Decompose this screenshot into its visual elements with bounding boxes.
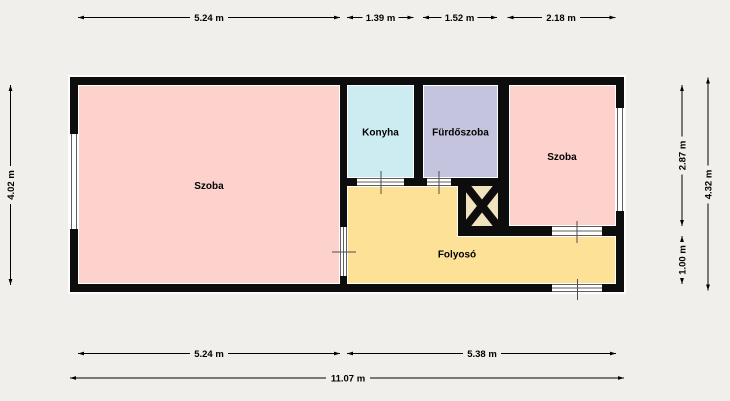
svg-text:Fürdőszoba: Fürdőszoba	[432, 128, 489, 139]
svg-text:Szoba: Szoba	[547, 152, 577, 163]
svg-text:5.24 m: 5.24 m	[194, 13, 224, 24]
svg-text:11.07 m: 11.07 m	[331, 374, 365, 385]
svg-text:4.02 m: 4.02 m	[6, 170, 17, 200]
svg-text:2.87 m: 2.87 m	[678, 141, 689, 171]
svg-text:2.18 m: 2.18 m	[546, 13, 576, 24]
svg-text:5.24 m: 5.24 m	[194, 349, 224, 360]
svg-text:1.00 m: 1.00 m	[678, 245, 689, 275]
svg-text:Szoba: Szoba	[194, 181, 224, 192]
svg-text:Folyosó: Folyosó	[438, 250, 476, 261]
svg-text:4.32 m: 4.32 m	[704, 170, 715, 200]
svg-text:Konyha: Konyha	[362, 128, 399, 139]
svg-text:1.39 m: 1.39 m	[366, 13, 396, 24]
svg-text:1.52 m: 1.52 m	[445, 13, 475, 24]
svg-text:5.38 m: 5.38 m	[467, 349, 497, 360]
